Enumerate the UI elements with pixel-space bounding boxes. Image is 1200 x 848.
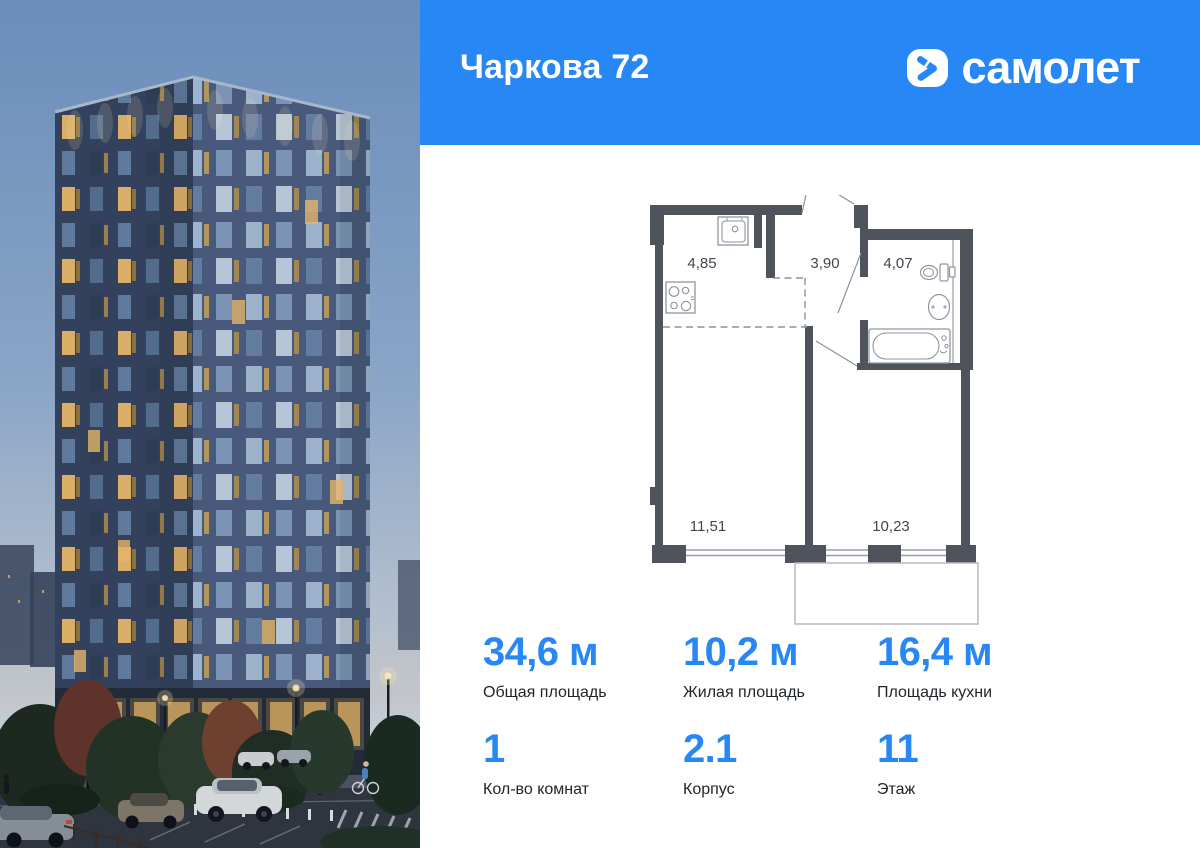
stat-building-value: 2.1	[683, 729, 737, 769]
floor-plan: 4,85 3,90 4,07 11,51 10,23	[648, 195, 980, 630]
balcony-outline	[795, 563, 978, 624]
stat-building: 2.1 Корпус	[683, 729, 737, 799]
building-scene	[0, 0, 420, 848]
room-label-bedroom: 10,23	[872, 518, 910, 535]
stat-rooms: 1 Кол-во комнат	[483, 729, 589, 799]
room-label-kitchen: 4,85	[687, 255, 716, 272]
toilet-icon	[921, 264, 956, 281]
brand-name: самолет	[961, 45, 1140, 90]
listing-panel: Чаркова 72 самолет	[420, 0, 1200, 848]
samolet-logo-icon	[907, 49, 948, 87]
kitchen-sink-icon	[718, 217, 748, 245]
stat-floor-value: 11	[877, 729, 918, 769]
apartment-listing-card: Чаркова 72 самолет	[0, 0, 1200, 848]
header-band: Чаркова 72 самолет	[420, 0, 1200, 145]
samolet-logo: самолет	[907, 45, 1140, 90]
stat-kitchen-area-value: 16,4 м	[877, 632, 992, 672]
pedestrian	[4, 774, 9, 794]
stat-living-area: 10,2 м Жилая площадь	[683, 632, 805, 702]
stat-kitchen-area-label: Площадь кухни	[877, 684, 992, 702]
project-title: Чаркова 72	[460, 48, 650, 87]
room-label-living: 11,51	[690, 518, 726, 535]
stat-living-area-value: 10,2 м	[683, 632, 805, 672]
bath-sink-icon	[929, 295, 950, 320]
stat-building-label: Корпус	[683, 781, 737, 799]
building-photo	[0, 0, 420, 848]
room-label-hall: 3,90	[810, 255, 839, 272]
stat-floor-label: Этаж	[877, 781, 918, 799]
room-label-bath: 4,07	[883, 255, 912, 272]
stat-total-area-value: 34,6 м	[483, 632, 607, 672]
bathtub-icon	[869, 329, 950, 363]
stat-kitchen-area: 16,4 м Площадь кухни	[877, 632, 992, 702]
stat-rooms-value: 1	[483, 729, 589, 769]
stat-rooms-label: Кол-во комнат	[483, 781, 589, 799]
stat-living-area-label: Жилая площадь	[683, 684, 805, 702]
stove-icon	[666, 282, 695, 313]
stat-total-area-label: Общая площадь	[483, 684, 607, 702]
stat-total-area: 34,6 м Общая площадь	[483, 632, 607, 702]
stat-floor: 11 Этаж	[877, 729, 918, 799]
